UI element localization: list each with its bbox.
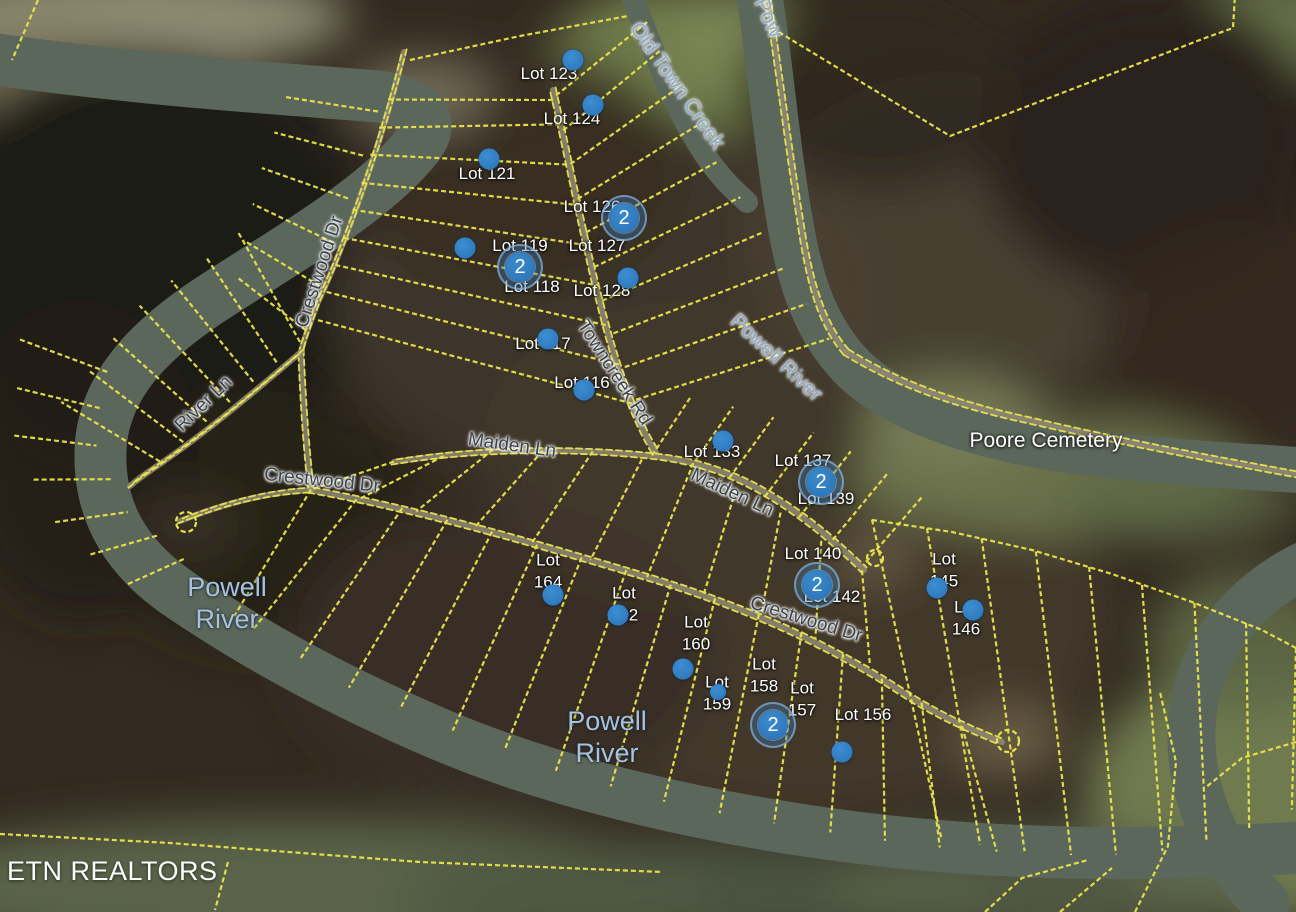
map-terrain [0,0,1296,912]
lot-marker-dot[interactable] [538,329,559,350]
lot-marker-cluster[interactable]: 2 [601,195,647,241]
cluster-count: 2 [758,710,788,740]
water-area-label-powell-river: PowellRiver [567,706,647,770]
lot-marker-dot[interactable] [963,600,984,621]
cluster-count: 2 [806,467,836,497]
lot-marker-dot[interactable] [479,149,500,170]
lot-marker-dot[interactable] [608,605,629,626]
lot-marker-cluster[interactable]: 2 [794,562,840,608]
cluster-count: 2 [609,203,639,233]
lot-marker-dot[interactable] [563,50,584,71]
lot-marker-cluster[interactable]: 2 [750,702,796,748]
lot-label-160: Lot160 [682,611,710,655]
lot-marker-dot[interactable] [583,95,604,116]
lot-marker-dot[interactable] [710,684,726,700]
lot-marker-dot[interactable] [618,268,639,289]
lot-marker-dot[interactable] [455,238,476,259]
place-label-poore-cemetery: Poore Cemetery [970,429,1123,453]
lot-label-158: Lot158 [750,653,778,697]
lot-marker-dot[interactable] [673,659,694,680]
watermark-etn-realtors: ETN REALTORS [7,856,218,887]
lot-marker-cluster[interactable]: 2 [798,459,844,505]
lot-marker-dot[interactable] [832,742,853,763]
lot-marker-dot[interactable] [927,578,948,599]
cluster-count: 2 [505,252,535,282]
satellite-map[interactable]: Lot 123Lot 124Lot 121Lot 126Lot 119Lot 1… [0,0,1296,912]
cluster-count: 2 [802,570,832,600]
lot-marker-cluster[interactable]: 2 [497,244,543,290]
lot-label-156: Lot 156 [835,704,892,726]
lot-marker-dot[interactable] [713,431,734,452]
lot-marker-dot[interactable] [574,380,595,401]
water-area-label-powell-river: PowellRiver [187,572,267,636]
lot-marker-dot[interactable] [543,585,564,606]
